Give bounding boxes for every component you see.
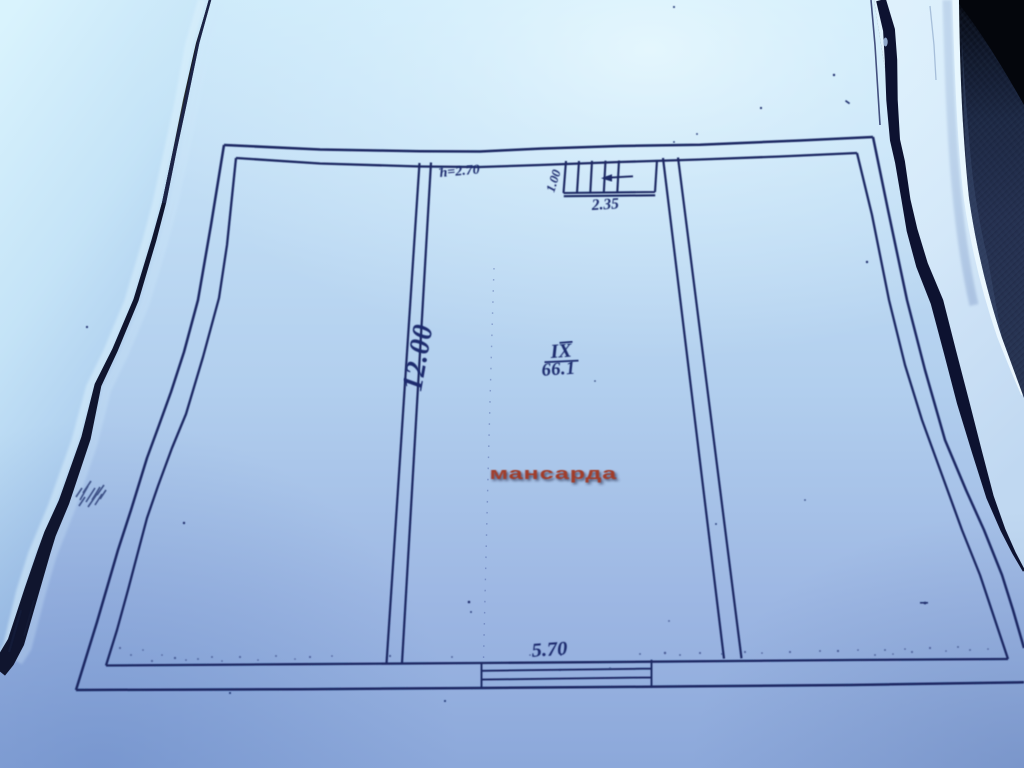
svg-text:66.1: 66.1 xyxy=(541,359,576,381)
svg-text:мансарда: мансарда xyxy=(490,464,618,483)
svg-text:5.70: 5.70 xyxy=(531,638,568,662)
svg-text:2.35: 2.35 xyxy=(590,196,619,214)
